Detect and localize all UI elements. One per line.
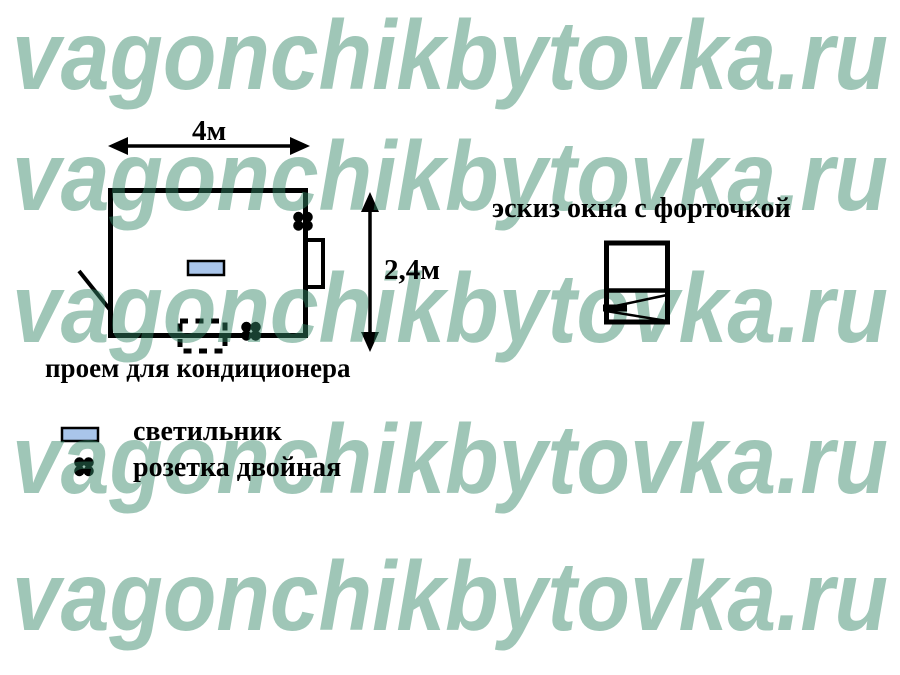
width-dimension-label: 4м [192,117,226,146]
window-sketch-title: эскиз окна с форточкой [492,195,791,223]
legend-double-socket-label: розетка двойная [133,454,341,482]
height-dimension-label: 2,4м [384,256,440,285]
window-sketch-layer [0,0,900,675]
legend-light-fixture-label: светильник [133,418,282,446]
window-sketch-drawing [603,243,670,322]
diagram-page: vagonchikbytovka.ru vagonchikbytovka.ru … [0,0,900,675]
ac-opening-label: проем для кондиционера [45,355,351,382]
